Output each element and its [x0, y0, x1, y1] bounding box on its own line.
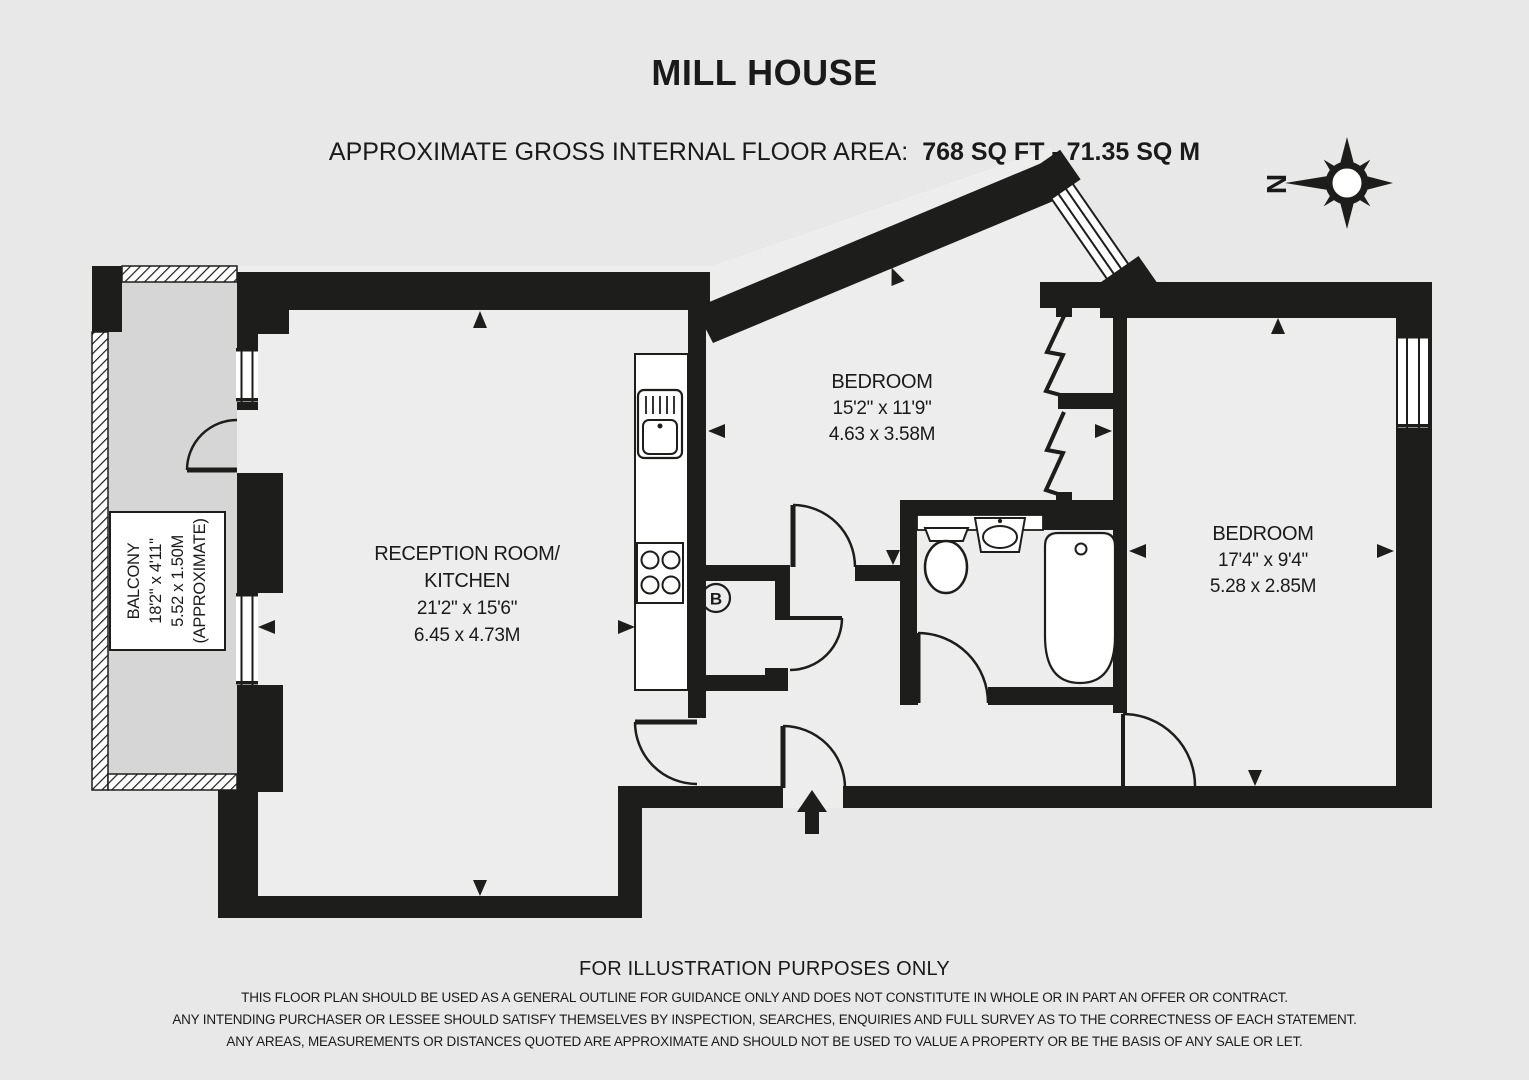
floor-area-line: APPROXIMATE GROSS INTERNAL FLOOR AREA:76… [0, 138, 1529, 167]
balcony-dims-imperial: 18'2" x 4'11" [147, 538, 165, 624]
balcony-label: BALCONY 18'2" x 4'11" 5.52 x 1.50M (APPR… [110, 512, 225, 650]
reception-dims-metric: 6.45 x 4.73M [414, 625, 520, 646]
reception-window-lower [236, 593, 258, 685]
reception-dims-imperial: 21'2" x 15'6" [417, 598, 517, 619]
floorplan-page: barnard marcus [0, 0, 1529, 1080]
disclaimer-line-1: THIS FLOOR PLAN SHOULD BE USED AS A GENE… [0, 990, 1529, 1005]
bedroom2-label: BEDROOM 17'4" x 9'4" 5.28 x 2.85M [1210, 523, 1316, 597]
illustration-notice: FOR ILLUSTRATION PURPOSES ONLY [0, 958, 1529, 981]
disclaimer-line-2: ANY INTENDING PURCHASER OR LESSEE SHOULD… [0, 1012, 1529, 1027]
north-label: N [1261, 174, 1292, 194]
bedroom2-name: BEDROOM [1212, 523, 1313, 545]
floor-area-value: 768 SQ FT - 71.35 SQ M [922, 138, 1200, 166]
bedroom2-dims-metric: 5.28 x 2.85M [1210, 576, 1316, 597]
disclaimer-line-3: ANY AREAS, MEASUREMENTS OR DISTANCES QUO… [0, 1034, 1529, 1049]
bedroom2-dims-imperial: 17'4" x 9'4" [1218, 550, 1308, 571]
reception-name-2: KITCHEN [424, 570, 510, 592]
floor-area-label: APPROXIMATE GROSS INTERNAL FLOOR AREA: [329, 138, 908, 166]
bedroom1-label: BEDROOM 15'2" x 11'9" 4.63 x 3.58M [829, 371, 935, 445]
toilet-icon [925, 528, 968, 593]
reception-window-upper [236, 348, 258, 402]
balcony-note: (APPROXIMATE) [191, 518, 209, 643]
kitchen-sink-icon [638, 390, 682, 458]
reception-name-1: RECEPTION ROOM/ [374, 543, 560, 565]
bedroom2-window [1398, 335, 1428, 428]
balcony-name: BALCONY [125, 542, 143, 619]
bathtub-icon [1045, 533, 1115, 683]
bedroom1-dims-imperial: 15'2" x 11'9" [833, 398, 932, 419]
kitchen-counter [635, 354, 688, 690]
bedroom1-dims-metric: 4.63 x 3.58M [829, 424, 935, 445]
boiler-label: B [710, 590, 722, 609]
page-title: MILL HOUSE [0, 52, 1529, 94]
bedroom1-name: BEDROOM [831, 371, 932, 393]
basin-icon [975, 518, 1025, 552]
hob-icon [637, 543, 683, 603]
balcony-dims-metric: 5.52 x 1.50M [169, 535, 187, 627]
